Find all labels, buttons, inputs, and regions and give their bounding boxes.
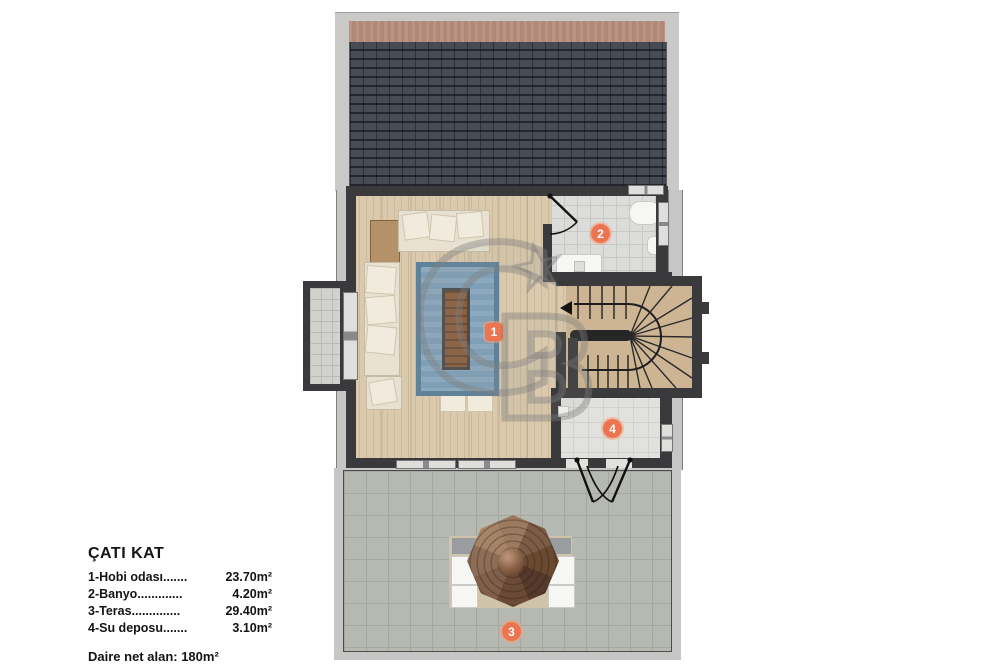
bathroom-window-right [658, 202, 669, 246]
gazebo-peak [497, 548, 525, 576]
legend-net-area: Daire net alan: 180m² [88, 649, 272, 664]
bathroom-door-arc [547, 192, 587, 248]
roof-shingles [349, 42, 667, 189]
legend-item-label: 3-Teras.............. [88, 603, 180, 620]
legend-item-area: 3.10m² [232, 620, 272, 637]
wall-bath-bottom [543, 272, 672, 282]
legend-item-area: 29.40m² [225, 603, 272, 620]
legend-item: 3-Teras.............. 29.40m² [88, 603, 272, 620]
sofa-cushion [456, 211, 484, 239]
sideboard [370, 220, 400, 264]
roof-ridge [349, 21, 665, 43]
staircase [566, 286, 692, 388]
sofa-cushion [429, 214, 458, 243]
sofa-cushion [401, 211, 430, 240]
marker-bath: 2 [591, 224, 610, 243]
marker-terrace: 3 [502, 622, 521, 641]
terrace-door-arcs [556, 456, 648, 512]
bathroom-window-top [628, 185, 664, 195]
legend-item: 1-Hobi odası....... 23.70m² [88, 569, 272, 586]
terrace-chair-right [548, 585, 575, 608]
marker-depot-number: 4 [609, 422, 616, 436]
hobby-window-left [343, 292, 358, 380]
sofa-cushion [365, 325, 398, 356]
legend-item-label: 2-Banyo............. [88, 586, 182, 603]
coffee-table [442, 288, 470, 370]
marker-bath-number: 2 [597, 227, 604, 241]
terrace-chair-left [451, 585, 478, 608]
legend-item: 2-Banyo............. 4.20m² [88, 586, 272, 603]
hobby-window-bottom [458, 460, 516, 469]
stair-pillar [702, 352, 709, 364]
sofa-cushion [365, 265, 397, 295]
marker-hobby: 1 [485, 323, 503, 341]
marker-terrace-number: 3 [508, 625, 515, 639]
legend-item-area: 4.20m² [232, 586, 272, 603]
sink-basin [574, 261, 585, 272]
roof [335, 12, 679, 191]
sofa-cushion [365, 295, 397, 326]
floor-plan-page: 1 2 4 [0, 0, 1000, 664]
marker-depot: 4 [603, 419, 622, 438]
hobby-window-bottom [396, 460, 456, 469]
depot-window-right [661, 424, 673, 452]
stair-direction-arrow [560, 301, 572, 315]
balcony-floor [310, 288, 340, 384]
wall-depot-left [551, 388, 561, 462]
legend-item-label: 1-Hobi odası....... [88, 569, 187, 586]
legend-title: ÇATI KAT [88, 545, 272, 563]
marker-hobby-number: 1 [491, 325, 498, 339]
legend-item: 4-Su deposu....... 3.10m² [88, 620, 272, 637]
depot-fixture [558, 406, 569, 417]
armchair-cushion [368, 378, 398, 406]
stair-pillar [702, 302, 709, 314]
wall-top [346, 186, 668, 196]
legend-item-label: 4-Su deposu....... [88, 620, 187, 637]
legend: ÇATI KAT 1-Hobi odası....... 23.70m² 2-B… [88, 545, 272, 664]
legend-item-area: 23.70m² [225, 569, 272, 586]
